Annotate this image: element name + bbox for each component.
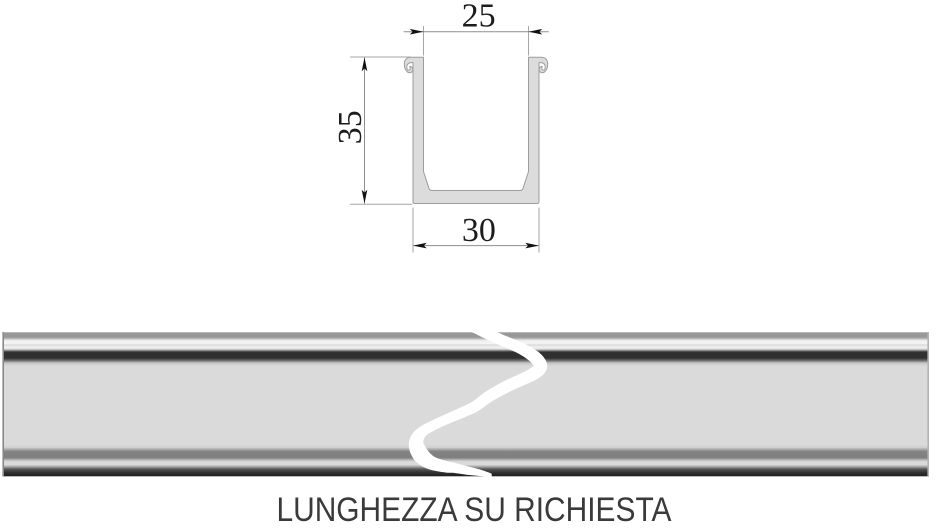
svg-text:35: 35 [332, 110, 369, 144]
svg-text:30: 30 [462, 212, 496, 249]
svg-text:25: 25 [462, 0, 496, 35]
svg-text:LUNGHEZZA SU RICHIESTA: LUNGHEZZA SU RICHIESTA [276, 490, 672, 528]
